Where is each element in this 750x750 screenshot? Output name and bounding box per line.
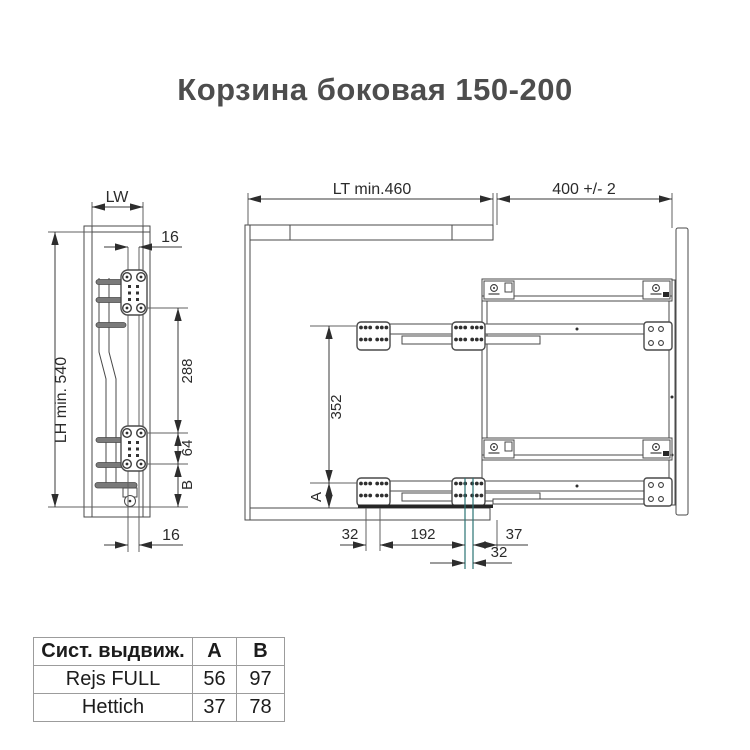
dim-37-label: 37 <box>506 526 523 543</box>
dimension-288: 288 <box>178 308 196 433</box>
spec-row-hettich: Hettich 37 78 <box>34 694 285 722</box>
dimension-352: 352 <box>310 326 357 483</box>
spec-header-row: Сист. выдвиж. A B <box>34 638 285 666</box>
spec-cell-system: Hettich <box>34 694 193 722</box>
dim-b-label: B <box>179 480 196 490</box>
spec-header-b: B <box>237 638 285 666</box>
dimension-32-front: 32 <box>340 526 398 545</box>
dimension-b: B <box>178 464 196 507</box>
spec-cell-b: 78 <box>237 694 285 722</box>
hatch-top-left <box>250 225 290 240</box>
spec-table: Сист. выдвиж. A B Rejs FULL 56 97 Hettic… <box>33 637 285 722</box>
dimension-16-bottom: 16 <box>104 527 183 545</box>
bottom-roller <box>123 488 137 507</box>
hatch-floor <box>250 508 490 520</box>
dim-64-label: 64 <box>179 440 196 457</box>
dim-32-rear-label: 32 <box>491 544 508 561</box>
dimension-192: 192 <box>380 526 465 545</box>
dimension-a: A <box>308 483 329 508</box>
dimension-400: 400 +/- 2 <box>497 181 672 228</box>
dim-lw-label: LW <box>106 189 130 206</box>
dim-192-label: 192 <box>410 526 435 543</box>
lower-slide-rails <box>357 478 672 508</box>
basket-column <box>482 279 487 501</box>
spec-row-rejs: Rejs FULL 56 97 <box>34 666 285 694</box>
side-view: LT min.460 400 +/- 2 352 A <box>245 181 688 569</box>
dim-lt-label: LT min.460 <box>333 181 412 198</box>
page: Корзина боковая 150-200 <box>0 0 750 750</box>
spec-cell-system: Rejs FULL <box>34 666 193 694</box>
dim-32-front-label: 32 <box>342 526 359 543</box>
front-view: LW 16 LH min. 540 <box>48 189 196 552</box>
dim-lh-label: LH min. 540 <box>53 357 70 443</box>
spec-header-a: A <box>193 638 237 666</box>
dim-a-label: A <box>308 492 325 502</box>
dimension-lw: LW <box>92 189 143 226</box>
dim-352-label: 352 <box>328 394 345 419</box>
lower-basket-profile <box>482 438 672 460</box>
dim-16-top-label: 16 <box>161 229 179 246</box>
page-title: Корзина боковая 150-200 <box>0 72 750 108</box>
spec-cell-a: 56 <box>193 666 237 694</box>
technical-drawing: LW 16 LH min. 540 <box>0 155 750 625</box>
spec-cell-a: 37 <box>193 694 237 722</box>
upper-basket-profile <box>482 279 672 301</box>
front-panel-door <box>669 228 688 515</box>
dim-288-label: 288 <box>179 358 196 383</box>
dimension-37: 37 <box>473 526 528 545</box>
mounting-bracket-bottom <box>121 426 147 471</box>
spec-cell-b: 97 <box>237 666 285 694</box>
dimension-64: 64 <box>178 433 196 464</box>
mounting-bracket-top <box>121 270 147 315</box>
dimension-32-rear: 32 <box>430 544 512 563</box>
cabinet-carcass <box>245 225 493 520</box>
hatch-top-right <box>452 225 493 240</box>
spec-header-system: Сист. выдвиж. <box>34 638 193 666</box>
upper-slide-rails <box>357 322 672 350</box>
dim-16-bottom-label: 16 <box>162 527 180 544</box>
dim-400-label: 400 +/- 2 <box>552 181 616 198</box>
dimension-lt: LT min.460 <box>248 181 493 225</box>
